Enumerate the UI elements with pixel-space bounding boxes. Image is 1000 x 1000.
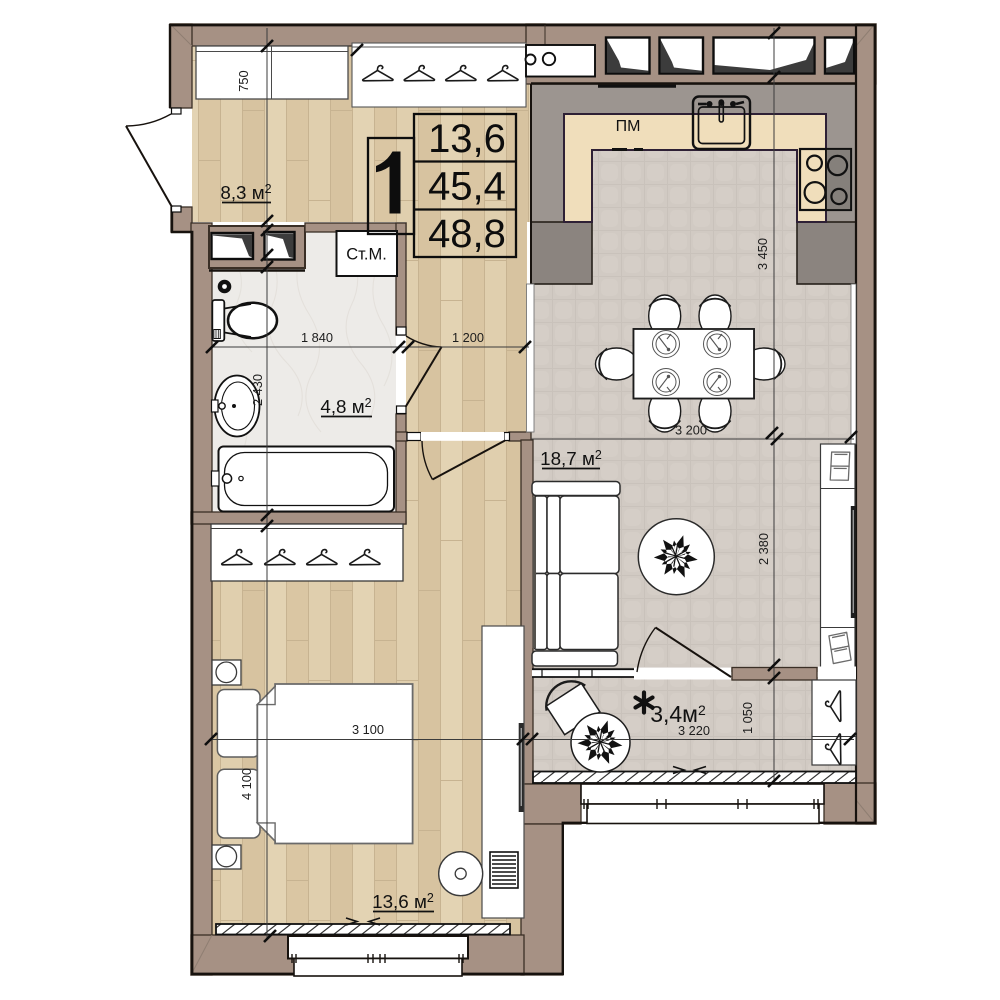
svg-text:13,6 м2: 13,6 м2 xyxy=(372,891,434,912)
svg-text:1 200: 1 200 xyxy=(452,330,484,345)
svg-text:750: 750 xyxy=(236,70,251,91)
svg-text:8,3 м2: 8,3 м2 xyxy=(220,182,271,203)
svg-text:2 430: 2 430 xyxy=(250,374,265,406)
svg-text:18,7 м2: 18,7 м2 xyxy=(540,448,602,469)
svg-text:ПМ: ПМ xyxy=(616,118,641,135)
svg-text:3 100: 3 100 xyxy=(352,722,384,737)
svg-text:3,4м2: 3,4м2 xyxy=(650,701,706,727)
svg-text:2 380: 2 380 xyxy=(756,533,771,565)
svg-text:48,8: 48,8 xyxy=(428,212,506,256)
svg-text:1 050: 1 050 xyxy=(740,702,755,734)
svg-text:3 450: 3 450 xyxy=(755,238,770,270)
svg-text:4,8 м2: 4,8 м2 xyxy=(320,396,371,417)
svg-text:3 200: 3 200 xyxy=(675,423,707,438)
svg-text:45,4: 45,4 xyxy=(428,165,506,209)
svg-text:4 100: 4 100 xyxy=(239,768,254,800)
svg-text:13,6: 13,6 xyxy=(428,117,506,161)
svg-text:1 840: 1 840 xyxy=(301,330,333,345)
svg-text:Ст.М.: Ст.М. xyxy=(346,246,387,264)
